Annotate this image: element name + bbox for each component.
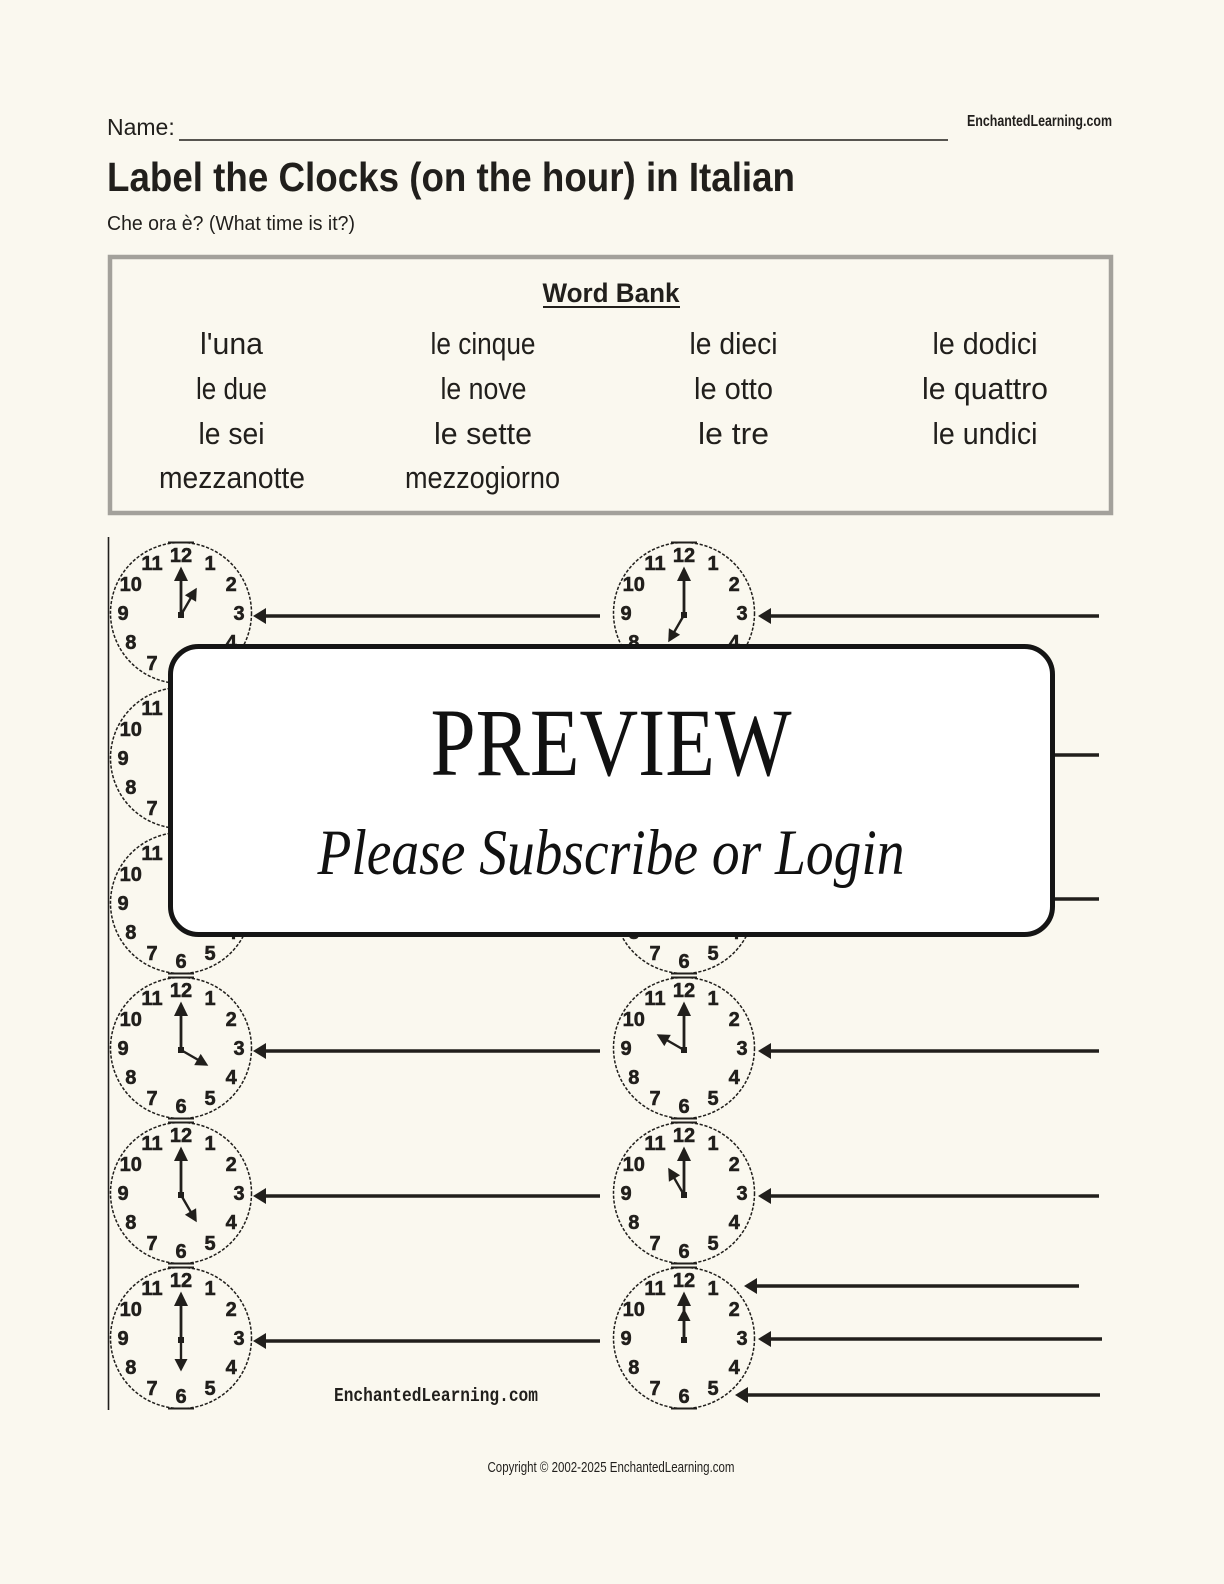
svg-text:1: 1 <box>707 1133 718 1155</box>
svg-text:2: 2 <box>729 1154 740 1176</box>
svg-text:le sei: le sei <box>199 416 265 451</box>
svg-text:6: 6 <box>678 1096 689 1118</box>
svg-text:5: 5 <box>204 1378 215 1400</box>
svg-text:12: 12 <box>170 980 192 1002</box>
svg-text:8: 8 <box>125 1212 136 1234</box>
svg-text:5: 5 <box>204 1233 215 1255</box>
svg-text:5: 5 <box>707 1088 718 1110</box>
svg-text:11: 11 <box>141 843 162 865</box>
svg-text:12: 12 <box>673 1270 695 1292</box>
svg-text:Copyright © 2002-2025 Enchante: Copyright © 2002-2025 EnchantedLearning.… <box>488 1460 735 1476</box>
svg-text:6: 6 <box>175 1241 186 1263</box>
svg-text:10: 10 <box>120 1009 142 1031</box>
svg-text:10: 10 <box>623 1009 645 1031</box>
svg-text:10: 10 <box>120 1299 142 1321</box>
svg-text:9: 9 <box>620 1183 631 1205</box>
svg-text:11: 11 <box>141 1278 162 1300</box>
svg-text:3: 3 <box>736 1183 747 1205</box>
svg-text:7: 7 <box>146 943 157 965</box>
svg-text:EnchantedLearning.com: EnchantedLearning.com <box>967 113 1112 130</box>
svg-text:7: 7 <box>649 943 660 965</box>
svg-text:2: 2 <box>729 1299 740 1321</box>
svg-text:Name:: Name: <box>107 114 175 140</box>
svg-text:4: 4 <box>226 1357 238 1379</box>
svg-text:12: 12 <box>170 1270 192 1292</box>
svg-text:9: 9 <box>117 893 128 915</box>
svg-text:7: 7 <box>649 1088 660 1110</box>
svg-text:9: 9 <box>620 1038 631 1060</box>
svg-text:le dodici: le dodici <box>933 326 1038 361</box>
svg-text:le sette: le sette <box>434 416 532 451</box>
svg-text:5: 5 <box>707 1233 718 1255</box>
svg-text:5: 5 <box>707 1378 718 1400</box>
svg-text:3: 3 <box>233 1328 244 1350</box>
svg-text:9: 9 <box>117 1038 128 1060</box>
svg-text:9: 9 <box>117 1328 128 1350</box>
svg-text:11: 11 <box>141 698 162 720</box>
svg-text:7: 7 <box>146 1378 157 1400</box>
svg-text:2: 2 <box>226 1299 237 1321</box>
svg-text:12: 12 <box>170 1125 192 1147</box>
svg-text:1: 1 <box>204 1278 215 1300</box>
svg-text:7: 7 <box>146 1088 157 1110</box>
svg-text:9: 9 <box>117 748 128 770</box>
svg-text:7: 7 <box>146 653 157 675</box>
svg-text:7: 7 <box>146 1233 157 1255</box>
svg-text:11: 11 <box>644 553 665 575</box>
svg-text:10: 10 <box>120 719 142 741</box>
svg-text:1: 1 <box>204 988 215 1010</box>
svg-text:le cinque: le cinque <box>431 326 536 361</box>
svg-text:1: 1 <box>204 553 215 575</box>
svg-text:8: 8 <box>628 1212 639 1234</box>
svg-text:4: 4 <box>226 1212 238 1234</box>
svg-text:11: 11 <box>644 1133 665 1155</box>
svg-text:Word Bank: Word Bank <box>543 278 681 308</box>
svg-text:1: 1 <box>707 1278 718 1300</box>
svg-text:12: 12 <box>673 980 695 1002</box>
svg-text:11: 11 <box>141 553 162 575</box>
svg-text:11: 11 <box>644 988 665 1010</box>
svg-text:7: 7 <box>649 1378 660 1400</box>
svg-text:8: 8 <box>125 632 136 654</box>
svg-text:4: 4 <box>729 1212 741 1234</box>
svg-text:5: 5 <box>204 943 215 965</box>
svg-text:1: 1 <box>204 1133 215 1155</box>
svg-text:1: 1 <box>707 988 718 1010</box>
svg-text:10: 10 <box>120 864 142 886</box>
svg-text:6: 6 <box>678 1241 689 1263</box>
svg-text:9: 9 <box>117 1183 128 1205</box>
svg-text:le nove: le nove <box>441 371 527 406</box>
svg-text:PREVIEW: PREVIEW <box>431 689 792 796</box>
svg-text:mezzogiorno: mezzogiorno <box>405 460 560 495</box>
svg-text:6: 6 <box>175 1386 186 1408</box>
svg-text:7: 7 <box>146 798 157 820</box>
svg-text:12: 12 <box>673 545 695 567</box>
svg-text:3: 3 <box>233 1038 244 1060</box>
svg-text:6: 6 <box>678 1386 689 1408</box>
svg-text:mezzanotte: mezzanotte <box>159 460 305 495</box>
svg-text:6: 6 <box>175 1096 186 1118</box>
svg-text:11: 11 <box>141 1133 162 1155</box>
svg-text:6: 6 <box>678 951 689 973</box>
svg-text:2: 2 <box>226 1154 237 1176</box>
svg-text:10: 10 <box>120 574 142 596</box>
svg-text:2: 2 <box>729 574 740 596</box>
svg-text:10: 10 <box>120 1154 142 1176</box>
svg-text:8: 8 <box>125 777 136 799</box>
svg-text:le tre: le tre <box>698 416 769 451</box>
svg-text:Please Subscribe or Login: Please Subscribe or Login <box>317 817 905 889</box>
svg-text:Che ora è? (What time is it?): Che ora è? (What time is it?) <box>107 213 355 235</box>
svg-text:8: 8 <box>125 922 136 944</box>
svg-text:8: 8 <box>628 1357 639 1379</box>
svg-text:9: 9 <box>620 1328 631 1350</box>
svg-text:4: 4 <box>226 1067 238 1089</box>
svg-text:8: 8 <box>628 1067 639 1089</box>
svg-text:9: 9 <box>620 603 631 625</box>
svg-text:le undici: le undici <box>933 416 1038 451</box>
svg-text:EnchantedLearning.com: EnchantedLearning.com <box>334 1385 538 1407</box>
svg-text:12: 12 <box>673 1125 695 1147</box>
svg-text:l'una: l'una <box>200 326 264 361</box>
svg-text:8: 8 <box>125 1357 136 1379</box>
svg-text:11: 11 <box>141 988 162 1010</box>
svg-text:3: 3 <box>736 1038 747 1060</box>
svg-text:3: 3 <box>736 1328 747 1350</box>
svg-text:le dieci: le dieci <box>690 326 778 361</box>
svg-text:9: 9 <box>117 603 128 625</box>
svg-text:6: 6 <box>175 951 186 973</box>
svg-text:8: 8 <box>125 1067 136 1089</box>
svg-text:5: 5 <box>707 943 718 965</box>
svg-text:1: 1 <box>707 553 718 575</box>
svg-text:2: 2 <box>226 574 237 596</box>
svg-text:Label the Clocks (on the hour): Label the Clocks (on the hour) in Italia… <box>107 154 795 200</box>
svg-text:5: 5 <box>204 1088 215 1110</box>
svg-text:11: 11 <box>644 1278 665 1300</box>
svg-text:4: 4 <box>729 1067 741 1089</box>
svg-text:4: 4 <box>729 1357 741 1379</box>
svg-text:10: 10 <box>623 574 645 596</box>
svg-text:7: 7 <box>649 1233 660 1255</box>
svg-text:3: 3 <box>233 1183 244 1205</box>
svg-text:le quattro: le quattro <box>922 371 1048 406</box>
svg-text:3: 3 <box>233 603 244 625</box>
svg-text:le due: le due <box>196 371 267 406</box>
svg-text:le otto: le otto <box>694 371 773 406</box>
svg-text:10: 10 <box>623 1154 645 1176</box>
svg-text:2: 2 <box>729 1009 740 1031</box>
svg-text:2: 2 <box>226 1009 237 1031</box>
svg-text:10: 10 <box>623 1299 645 1321</box>
svg-text:12: 12 <box>170 545 192 567</box>
svg-text:3: 3 <box>736 603 747 625</box>
